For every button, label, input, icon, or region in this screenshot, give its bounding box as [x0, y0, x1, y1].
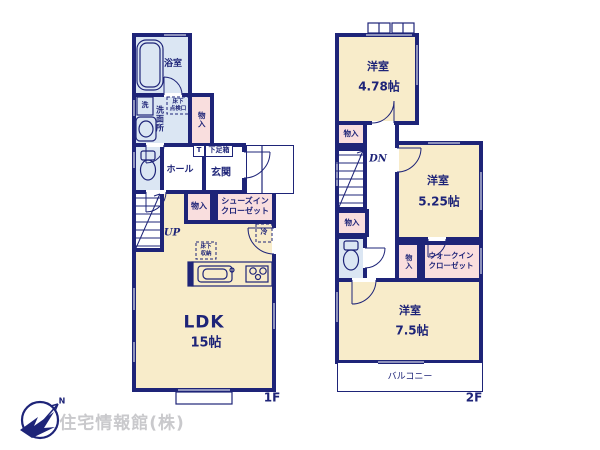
room-storage-a-1f — [188, 93, 214, 147]
room-bedroom-478 — [335, 33, 419, 125]
room-storage-b-1f — [184, 190, 214, 224]
room-toilet-2f — [335, 235, 367, 282]
labels-layer: 浴室 洗 洗面所 床下 点検口 物入 T 下足箱 ホール 玄関 物入 シューズイ… — [0, 0, 600, 450]
room-washroom — [132, 93, 192, 147]
compass-north-label: N — [59, 398, 66, 407]
shoebox — [205, 145, 233, 157]
room-bedroom-75 — [335, 278, 483, 364]
room-walkin-closet — [421, 241, 483, 282]
shoebox-t — [193, 145, 205, 157]
room-stairs-2f — [335, 147, 367, 211]
room-stairs-1f — [132, 190, 164, 252]
entrance-porch — [246, 145, 294, 194]
balcony — [337, 362, 483, 392]
room-bedroom-525 — [395, 141, 483, 241]
room-bathroom — [132, 33, 192, 97]
company-logo-text: 住宅情報館(株) — [59, 414, 185, 433]
compass-logo — [20, 402, 58, 438]
floorplan-linework — [0, 0, 600, 450]
room-storage-b-2f — [335, 209, 369, 237]
room-storage-a-2f — [335, 121, 367, 147]
floor1-label: 1F — [264, 391, 281, 404]
room-storage-c-2f — [395, 241, 421, 282]
floorplan-image: 浴室 洗 洗面所 床下 点検口 物入 T 下足箱 ホール 玄関 物入 シューズイ… — [0, 0, 600, 450]
floor2-label: 2F — [466, 391, 483, 404]
room-shoes-closet — [214, 190, 276, 224]
